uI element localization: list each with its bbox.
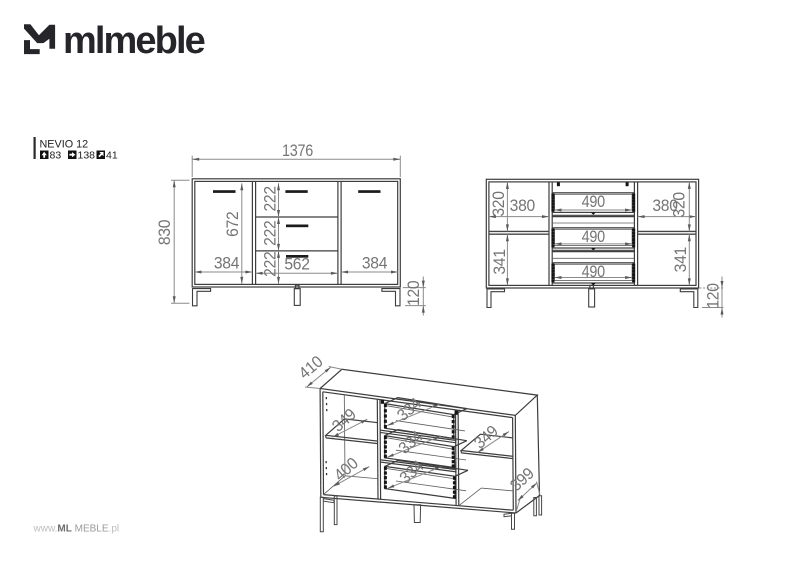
svg-text:320: 320 bbox=[490, 191, 508, 216]
svg-text:320: 320 bbox=[671, 192, 689, 217]
svg-text:138: 138 bbox=[78, 149, 96, 161]
svg-text:490: 490 bbox=[582, 193, 605, 211]
svg-text:490: 490 bbox=[582, 228, 605, 246]
svg-text:83: 83 bbox=[50, 149, 62, 161]
svg-text:120: 120 bbox=[705, 283, 723, 308]
svg-text:830: 830 bbox=[156, 220, 174, 245]
svg-text:mlmeble: mlmeble bbox=[63, 20, 205, 62]
svg-text:120: 120 bbox=[405, 281, 423, 306]
svg-text:1376: 1376 bbox=[282, 142, 313, 160]
svg-text:384: 384 bbox=[214, 254, 239, 272]
svg-text:222: 222 bbox=[261, 220, 279, 245]
svg-text:380: 380 bbox=[510, 197, 535, 215]
svg-text:www.ML MEBLE.pl: www.ML MEBLE.pl bbox=[33, 524, 120, 535]
svg-text:222: 222 bbox=[261, 251, 279, 276]
svg-text:41: 41 bbox=[106, 149, 118, 161]
svg-text:490: 490 bbox=[582, 263, 605, 281]
svg-text:341: 341 bbox=[491, 249, 509, 274]
svg-text:384: 384 bbox=[362, 254, 387, 272]
svg-text:562: 562 bbox=[284, 256, 309, 274]
svg-text:672: 672 bbox=[224, 211, 242, 236]
svg-text:341: 341 bbox=[672, 247, 690, 272]
svg-text:222: 222 bbox=[261, 186, 279, 211]
